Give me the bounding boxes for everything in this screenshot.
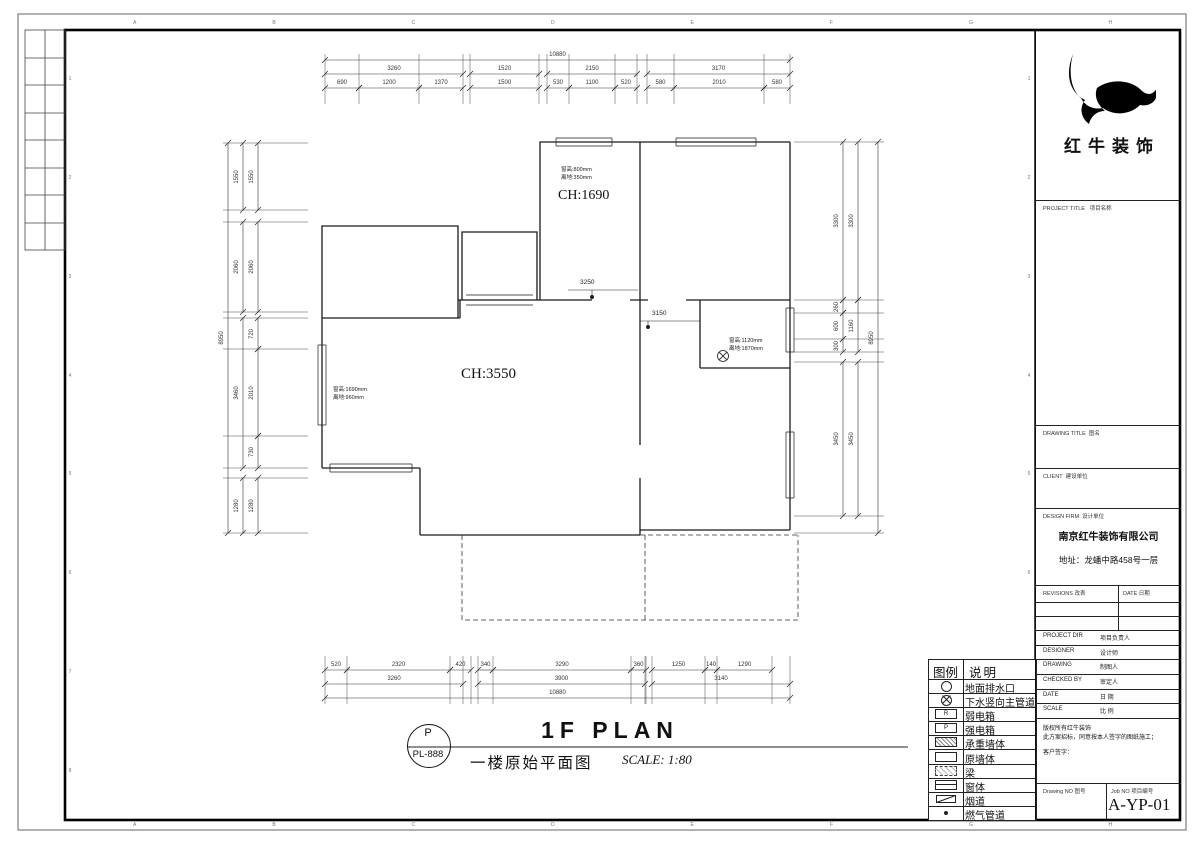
dimension-label: 1250 bbox=[672, 662, 685, 668]
legend-label: 燃气管道 bbox=[965, 807, 1005, 822]
zone-mark: 6 bbox=[1028, 570, 1031, 576]
zone-mark: D bbox=[551, 20, 555, 26]
project-title-label: PROJECT TITLE 项目名称 bbox=[1043, 204, 1112, 212]
dimension-label: 8950 bbox=[219, 331, 225, 344]
dimension-label: 340 bbox=[480, 662, 490, 668]
dimension-label: 1200 bbox=[382, 80, 395, 86]
dimension-label: 140 bbox=[706, 662, 716, 668]
job-no-label: Job NO 项目编号 bbox=[1111, 787, 1153, 795]
zone-mark: G bbox=[969, 822, 973, 828]
zone-mark: D bbox=[551, 822, 555, 828]
legend-row: 燃气管道 bbox=[929, 806, 1036, 820]
revisions-divider bbox=[1118, 585, 1119, 630]
zone-mark: 7 bbox=[69, 669, 72, 675]
client-label: CLIENT 建设单位 bbox=[1043, 472, 1088, 480]
dimension-label: 3140 bbox=[714, 676, 727, 682]
zone-mark: E bbox=[691, 822, 694, 828]
legend-row: 承重墙体 bbox=[929, 735, 1036, 750]
dimension-label: 3450 bbox=[834, 432, 840, 445]
legend-table: 图例 说明 地面排水口 下水竖向主管道 R 弱电箱 P 强电箱 承重墙体 原墙体… bbox=[928, 659, 1037, 821]
dimension-label: 3290 bbox=[555, 662, 568, 668]
dimension-label: 3300 bbox=[849, 214, 855, 227]
dimension-label: 520 bbox=[621, 80, 631, 86]
zone-mark: 2 bbox=[1028, 175, 1031, 181]
leader-label-3250: 3250 bbox=[580, 279, 594, 286]
zone-mark: 4 bbox=[1028, 373, 1031, 379]
ceiling-height-label-main: CH:3550 bbox=[461, 366, 516, 383]
dimension-label: 3260 bbox=[387, 676, 400, 682]
zone-mark: G bbox=[969, 20, 973, 26]
zone-mark: 3 bbox=[1028, 274, 1031, 280]
dimension-label: 1520 bbox=[498, 66, 511, 72]
dimension-label: 1280 bbox=[249, 499, 255, 512]
plan-title-zh: 一楼原始平面图 bbox=[470, 751, 593, 773]
dimension-label: 3300 bbox=[834, 214, 840, 227]
dimension-label: 360 bbox=[633, 662, 643, 668]
drain-pipe-icon bbox=[718, 351, 729, 362]
plan-walls bbox=[322, 142, 790, 535]
drawing-title-label: DRAWING TITLE 图名 bbox=[1043, 429, 1100, 437]
dimension-label: 300 bbox=[834, 340, 840, 350]
dimension-label: 1100 bbox=[586, 80, 599, 86]
checked-by-label: CHECKED BY bbox=[1043, 677, 1082, 683]
company-name: 红牛装饰 bbox=[1036, 132, 1181, 157]
ceiling-height-label-top: CH:1690 bbox=[558, 188, 609, 204]
gas-pipe-icon bbox=[944, 811, 948, 815]
dimension-label: 730 bbox=[249, 447, 255, 457]
dimension-label: 1550 bbox=[249, 170, 255, 183]
leader-label-3150: 3150 bbox=[652, 310, 666, 317]
zone-mark: B bbox=[272, 20, 275, 26]
firm-address: 地址：龙蟠中路458号一层 bbox=[1036, 554, 1181, 566]
beam-icon bbox=[935, 766, 957, 776]
drawing-number: A-YP-01 bbox=[1108, 795, 1170, 815]
dimension-label: 8950 bbox=[869, 331, 875, 344]
dimension-label: 1500 bbox=[498, 80, 511, 86]
weak-power-box-icon: R bbox=[935, 709, 957, 719]
dimension-label: 2320 bbox=[392, 662, 405, 668]
plan-title-en: 1F PLAN bbox=[525, 717, 695, 744]
window-annotation-left: 窗高:1690mm离地:960mm bbox=[333, 370, 367, 418]
bearing-wall-icon bbox=[935, 737, 957, 747]
zone-mark: 8 bbox=[69, 768, 72, 774]
dimension-label: 260 bbox=[834, 301, 840, 311]
date-label: DATE bbox=[1043, 692, 1059, 698]
flue-icon bbox=[936, 795, 956, 803]
dimension-label: 3260 bbox=[387, 66, 400, 72]
project-dir-label: PROJECT DIR bbox=[1043, 633, 1083, 639]
legend-header: 图例 说明 bbox=[929, 660, 1036, 680]
drawing-no-label: Drawing NO 图号 bbox=[1043, 787, 1086, 795]
zone-mark: A bbox=[133, 20, 136, 26]
dimension-label: 690 bbox=[337, 80, 347, 86]
dimension-label: 1160 bbox=[849, 320, 855, 333]
zone-mark: 5 bbox=[69, 471, 72, 477]
title-block: 红牛装饰 PROJECT TITLE 项目名称 DRAWING TITLE 图名… bbox=[1035, 30, 1181, 820]
company-logo-icon bbox=[1061, 52, 1156, 130]
original-wall-icon bbox=[935, 752, 957, 762]
drawing-by-label: DRAWING bbox=[1043, 662, 1072, 668]
signature-strip bbox=[25, 30, 65, 250]
legend-row: 梁 bbox=[929, 764, 1036, 779]
dimension-label: 520 bbox=[331, 662, 341, 668]
dimension-label: 1370 bbox=[434, 80, 447, 86]
floor-drain-icon bbox=[941, 681, 952, 692]
firm-name: 南京红牛装饰有限公司 bbox=[1036, 528, 1181, 543]
dimension-label: 2150 bbox=[585, 66, 598, 72]
dimension-label: 2060 bbox=[249, 260, 255, 273]
dimension-label: 720 bbox=[249, 328, 255, 338]
zone-mark: 2 bbox=[69, 175, 72, 181]
legend-row: P 强电箱 bbox=[929, 721, 1036, 736]
dimension-label: 1280 bbox=[234, 499, 240, 512]
dimension-label: 3170 bbox=[712, 66, 725, 72]
zone-mark: 1 bbox=[1028, 76, 1031, 82]
dimension-label: 2010 bbox=[712, 80, 725, 86]
revisions-label: REVISIONS 改表 bbox=[1043, 589, 1086, 597]
dimension-label: 1550 bbox=[234, 170, 240, 183]
legend-row: 烟道 bbox=[929, 792, 1036, 807]
dimension-label: 530 bbox=[553, 80, 563, 86]
leader-lines bbox=[568, 290, 700, 329]
zone-mark: 1 bbox=[69, 76, 72, 82]
dimension-label: 600 bbox=[834, 321, 840, 331]
scale-label: SCALE bbox=[1043, 706, 1063, 712]
zone-mark: A bbox=[133, 822, 136, 828]
window-icon bbox=[935, 780, 957, 790]
dimension-label: 2010 bbox=[249, 386, 255, 399]
legend-row: R 弱电箱 bbox=[929, 707, 1036, 722]
dimension-label: 580 bbox=[772, 80, 782, 86]
plan-scale: SCALE: 1:80 bbox=[622, 752, 692, 768]
zone-mark: C bbox=[412, 822, 416, 828]
stamp-code: PL-888 bbox=[407, 749, 449, 760]
window-annotation-right: 窗高:1120mm离地:1870mm bbox=[729, 321, 763, 369]
zone-mark: H bbox=[1109, 822, 1113, 828]
legend-row: 地面排水口 bbox=[929, 679, 1036, 694]
zone-mark: 6 bbox=[69, 570, 72, 576]
revisions-date-label: DATE 日期 bbox=[1123, 589, 1150, 597]
zone-mark: E bbox=[691, 20, 694, 26]
dimension-label: 2060 bbox=[234, 260, 240, 273]
zone-mark: C bbox=[412, 20, 416, 26]
strong-power-box-icon: P bbox=[935, 723, 957, 733]
dimension-label: 3900 bbox=[555, 676, 568, 682]
dimension-label: 10880 bbox=[549, 52, 566, 58]
dimension-label: 3450 bbox=[849, 432, 855, 445]
legend-row: 下水竖向主管道 bbox=[929, 693, 1036, 708]
stamp-letter: P bbox=[407, 727, 449, 739]
zone-mark: H bbox=[1109, 20, 1113, 26]
zone-mark: B bbox=[272, 822, 275, 828]
zone-mark: F bbox=[830, 20, 833, 26]
dimension-label: 580 bbox=[655, 80, 665, 86]
dimension-label: 1290 bbox=[738, 662, 751, 668]
main-drain-pipe-icon bbox=[941, 695, 952, 706]
zone-mark: F bbox=[830, 822, 833, 828]
zone-mark: 5 bbox=[1028, 471, 1031, 477]
dimension-label: 420 bbox=[455, 662, 465, 668]
designer-label: DESIGNER bbox=[1043, 648, 1074, 654]
drawing-sheet: 窗高:800mm离地:350mm 窗高:1690mm离地:960mm 窗高:11… bbox=[0, 0, 1200, 844]
dimension-label: 3460 bbox=[234, 386, 240, 399]
copyright-note: 版权所有红牛装饰 此方案招标，同意按本人签字的图纸施工； 客户签字： bbox=[1043, 725, 1176, 758]
zone-mark: 4 bbox=[69, 373, 72, 379]
zone-mark: 3 bbox=[69, 274, 72, 280]
dimension-label: 10880 bbox=[549, 690, 566, 696]
drawing-no-divider bbox=[1106, 783, 1107, 820]
legend-row: 原墙体 bbox=[929, 750, 1036, 765]
dashed-terrace bbox=[462, 535, 798, 620]
legend-row: 窗体 bbox=[929, 778, 1036, 793]
design-firm-label: DESIGN FIRM 设计单位 bbox=[1043, 512, 1104, 520]
